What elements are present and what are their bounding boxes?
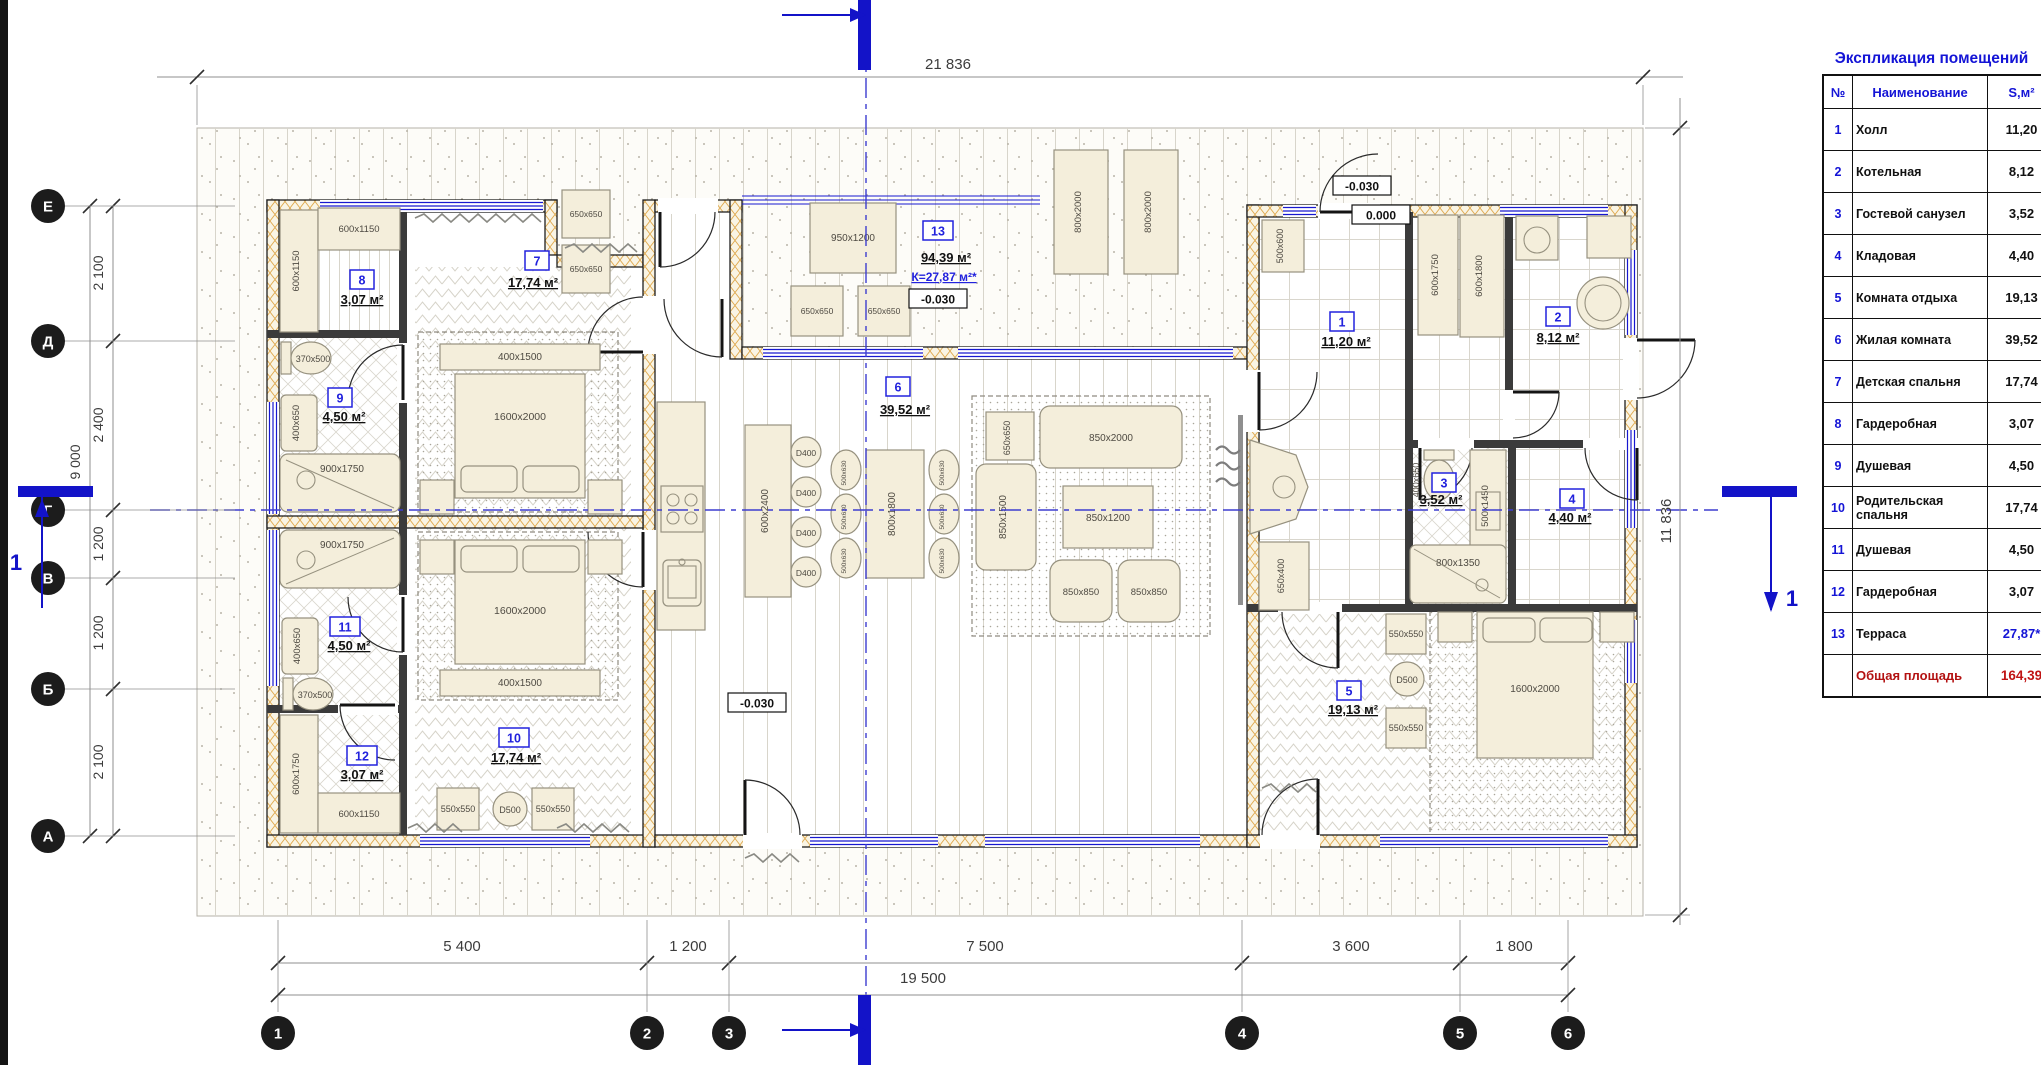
floor-plan-drawing: 600x1150600x1150370x500400x650900x175090…: [0, 0, 2041, 1065]
furniture-item: [283, 678, 293, 710]
furniture-size-label: 850x1200: [1086, 513, 1130, 524]
room-area: 3,07: [1988, 571, 2041, 613]
legend-row: 9Душевая4,50: [1823, 445, 2041, 487]
door-opening: [658, 198, 718, 214]
dim-text-left: 1 200: [90, 615, 106, 650]
furniture-item: [420, 540, 454, 574]
room-number: 5: [1823, 277, 1853, 319]
legend-row: 11Душевая4,50: [1823, 529, 2041, 571]
furniture-item: [663, 560, 701, 606]
legend-total-row: Общая площадь164,39: [1823, 655, 2041, 698]
furniture-item: [281, 342, 291, 374]
furniture-size-label: 850x850: [1063, 587, 1099, 598]
room-name: Детская спальня: [1853, 361, 1988, 403]
exterior-wall: [267, 516, 643, 528]
furniture-size-label: 650x650: [570, 264, 603, 274]
legend-col-name: Наименование: [1853, 75, 1988, 109]
room-number-text: 5: [1346, 685, 1353, 699]
furniture-size-label: 500x1450: [1480, 485, 1491, 527]
elevation-mark-text: -0.030: [921, 293, 955, 307]
furniture-size-label: 1600x2000: [1510, 684, 1560, 695]
furniture-size-label: D500: [1396, 675, 1418, 685]
interior-wall: [399, 212, 407, 835]
section-number-label: 1: [10, 550, 22, 575]
furniture-size-label: 400x1500: [498, 352, 542, 363]
furniture-size-label: 400x650: [291, 405, 302, 441]
furniture-item: [523, 466, 579, 492]
dim-text-bottom: 7 500: [966, 938, 1004, 955]
room-number-text: 12: [355, 750, 369, 764]
furniture-size-label: 400x650: [292, 628, 303, 664]
furniture-size-label: 600x1750: [1430, 254, 1441, 296]
room-area: 3,07: [1988, 403, 2041, 445]
room-number-text: 3: [1441, 477, 1448, 491]
furniture-size-label: 850x850: [1131, 587, 1167, 598]
furniture-size-label: 500x630: [841, 504, 848, 529]
room-name: Гостевой санузел: [1853, 193, 1988, 235]
room-floor: [1516, 448, 1625, 604]
furniture-size-label: 950x1200: [831, 233, 875, 244]
furniture-size-label: 650x650: [1002, 421, 1012, 456]
room-area: 27,87*: [1988, 613, 2041, 655]
room-area: 19,13: [1988, 277, 2041, 319]
axis-bubble-label: 5: [1456, 1026, 1464, 1043]
legend-row: 5Комната отдыха19,13: [1823, 277, 2041, 319]
furniture-size-label: D400: [796, 448, 817, 458]
room-name: Кладовая: [1853, 235, 1988, 277]
room-number-text: 8: [359, 274, 366, 288]
axis-bubble-label: 4: [1238, 1026, 1247, 1043]
door-opening: [641, 296, 657, 354]
room-name: Комната отдыха: [1853, 277, 1988, 319]
room-area-text: 4,40 м²: [1549, 510, 1593, 525]
total-area: 164,39: [1988, 655, 2041, 698]
dim-text-left: 2 100: [90, 744, 106, 779]
furniture-size-label: 550x550: [536, 804, 571, 814]
axis-bubble-label: 2: [643, 1026, 651, 1043]
room-area: 11,20: [1988, 109, 2041, 151]
elevation-mark-text: -0.030: [1345, 180, 1379, 194]
furniture-size-label: 550x550: [1389, 629, 1424, 639]
room-number-text: 7: [534, 255, 541, 269]
section-marker-bar: [1722, 486, 1797, 497]
legend-row: 4Кладовая4,40: [1823, 235, 2041, 277]
room-area-text: 39,52 м²: [880, 402, 931, 417]
furniture-size-label: 600x1150: [338, 224, 379, 235]
dim-text-overall-width: 21 836: [925, 56, 971, 73]
furniture-size-label: 500x630: [939, 548, 946, 573]
furniture-size-label: 500x630: [841, 460, 848, 485]
room-number: 9: [1823, 445, 1853, 487]
room-name: Холл: [1853, 109, 1988, 151]
furniture-size-label: 650x400: [1276, 559, 1286, 594]
room-area: 4,50: [1988, 445, 2041, 487]
terrace-coverage-text: К=27,87 м²*: [911, 270, 977, 284]
room-number: 13: [1823, 613, 1853, 655]
legend-row: 8Гардеробная3,07: [1823, 403, 2041, 445]
furniture-size-label: D400: [796, 528, 817, 538]
legend-row: 1Холл11,20: [1823, 109, 2041, 151]
furniture-item: [588, 480, 622, 514]
furniture-size-label: 650x650: [801, 306, 834, 316]
legend-row: 12Гардеробная3,07: [1823, 571, 2041, 613]
room-name: Родительская спальня: [1853, 487, 1988, 529]
room-number: 6: [1823, 319, 1853, 361]
room-floor: [318, 250, 399, 330]
room-number-text: 11: [338, 621, 351, 635]
interior-wall: [1405, 212, 1413, 604]
furniture-size-label: 500x630: [841, 548, 848, 573]
room-area-text: 94,39 м²: [921, 250, 972, 265]
door-swing-arc: [1637, 340, 1695, 398]
furniture-size-label: 800x2000: [1073, 191, 1084, 233]
room-name: Терраса: [1853, 613, 1988, 655]
furniture-size-label: 850x2000: [1089, 433, 1133, 444]
room-area: 17,74: [1988, 361, 2041, 403]
furniture-size-label: 600x1150: [338, 809, 379, 820]
legend-table-container: № Наименование S,м² 1Холл11,202Котельная…: [1822, 74, 2041, 698]
dim-text-bottom: 1 800: [1495, 938, 1533, 955]
room-area-text: 17,74 м²: [508, 275, 559, 290]
room-number: 1: [1823, 109, 1853, 151]
door-opening: [1503, 390, 1515, 440]
dim-text-bottom: 1 200: [669, 938, 707, 955]
room-name: Гардеробная: [1853, 571, 1988, 613]
furniture-size-label: 550x550: [441, 804, 476, 814]
room-name: Гардеробная: [1853, 403, 1988, 445]
room-area: 4,50: [1988, 529, 2041, 571]
legend-col-area: S,м²: [1988, 75, 2041, 109]
room-number-text: 2: [1555, 311, 1562, 325]
axis-bubble-label: 3: [725, 1026, 733, 1043]
furniture-item: [1424, 450, 1454, 460]
room-number-text: 4: [1569, 493, 1576, 507]
room-area-text: 3,52 м²: [1420, 492, 1464, 507]
room-number-text: 1: [1339, 316, 1346, 330]
furniture-size-label: 500x630: [939, 460, 946, 485]
elevation-mark-text: -0.030: [740, 697, 774, 711]
room-area-text: 3,07 м²: [341, 292, 385, 307]
room-area-text: 19,13 м²: [1328, 702, 1379, 717]
furniture-size-label: 850x1500: [998, 495, 1009, 539]
room-number-text: 10: [507, 732, 521, 746]
screen-edge-bar: [0, 0, 8, 1065]
room-name: Душевая: [1853, 529, 1988, 571]
legend-col-number: №: [1823, 75, 1853, 109]
room-area: 17,74: [1988, 487, 2041, 529]
legend-row: 3Гостевой санузел3,52: [1823, 193, 2041, 235]
furniture-size-label: 800x1350: [1436, 558, 1480, 569]
furniture-size-label: 600x1800: [1474, 255, 1485, 297]
axis-bubble-label: 6: [1564, 1026, 1572, 1043]
furniture-item: [523, 546, 579, 572]
room-name: Жилая комната: [1853, 319, 1988, 361]
dim-text-bottom: 3 600: [1332, 938, 1370, 955]
furniture-size-label: 550x550: [1389, 723, 1424, 733]
dim-text-total-height: 9 000: [67, 444, 83, 479]
room-number-text: 13: [931, 225, 945, 239]
furniture-size-label: 900x1750: [320, 540, 364, 551]
furniture-size-label: D500: [499, 805, 521, 815]
axis-bubble-label: А: [43, 829, 54, 846]
furniture-size-label: 1600x2000: [494, 605, 546, 617]
dim-text-left: 1 200: [90, 526, 106, 561]
legend-header-row: № Наименование S,м²: [1823, 75, 2041, 109]
door-opening: [1418, 438, 1474, 450]
furniture-size-label: 600x1750: [291, 753, 302, 795]
room-area: 8,12: [1988, 151, 2041, 193]
room-area: 3,52: [1988, 193, 2041, 235]
door-opening: [1623, 338, 1639, 400]
room-number-text: 9: [337, 392, 344, 406]
room-area-text: 8,12 м²: [1537, 330, 1581, 345]
exterior-wall: [730, 200, 742, 359]
legend-row: 10Родительская спальня17,74: [1823, 487, 2041, 529]
legend-row: 6Жилая комната39,52: [1823, 319, 2041, 361]
room-number: 10: [1823, 487, 1853, 529]
room-number: 4: [1823, 235, 1853, 277]
furniture-item: [661, 486, 703, 532]
furniture-size-label: 1600x2000: [494, 411, 546, 423]
furniture-item: [588, 540, 622, 574]
furniture-size-label: 650x650: [570, 209, 603, 219]
door-opening: [743, 833, 802, 849]
furniture-size-label: 800x1800: [887, 492, 898, 536]
room-area: 4,40: [1988, 235, 2041, 277]
furniture-size-label: 400x1500: [498, 678, 542, 689]
furniture-size-label: 370x500: [298, 690, 333, 700]
room-number: 7: [1823, 361, 1853, 403]
furniture-item: [1587, 216, 1631, 258]
furniture-size-label: 600x2400: [760, 489, 771, 533]
room-area: 39,52: [1988, 319, 2041, 361]
dim-text-total-width: 19 500: [900, 970, 946, 987]
dim-text-overall-height: 11 836: [1658, 499, 1675, 544]
cad-viewport: 600x1150600x1150370x500400x650900x175090…: [0, 0, 2041, 1065]
legend-row: 2Котельная8,12: [1823, 151, 2041, 193]
room-name: Котельная: [1853, 151, 1988, 193]
furniture-item: [461, 546, 517, 572]
room-area-text: 4,50 м²: [328, 638, 372, 653]
room-name: Душевая: [1853, 445, 1988, 487]
room-area-text: 4,50 м²: [323, 409, 367, 424]
room-number: 3: [1823, 193, 1853, 235]
room-area-text: 3,07 м²: [341, 767, 385, 782]
room-area-text: 11,20 м²: [1321, 334, 1371, 349]
elevation-mark-text: 0.000: [1366, 209, 1396, 223]
door-opening: [1260, 833, 1320, 849]
section-number-label: 1: [1786, 586, 1798, 611]
room-floor: [655, 212, 730, 359]
dim-text-bottom: 5 400: [443, 938, 481, 955]
legend-row: 7Детская спальня17,74: [1823, 361, 2041, 403]
axis-bubble-label: Б: [43, 682, 54, 699]
legend-title: Экспликация помещений: [1822, 50, 2041, 68]
legend-row: 13Терраса27,87*: [1823, 613, 2041, 655]
axis-bubble-label: 1: [274, 1026, 282, 1043]
room-legend-table: № Наименование S,м² 1Холл11,202Котельная…: [1822, 74, 2041, 698]
furniture-size-label: 650x650: [868, 306, 901, 316]
axis-bubble-label: Д: [43, 334, 54, 351]
furniture-size-label: 900x1750: [320, 464, 364, 475]
furniture-item: [461, 466, 517, 492]
section-marker-bar: [858, 0, 871, 70]
exterior-wall: [545, 200, 557, 255]
furniture-item: [1438, 612, 1472, 642]
room-area-text: 17,74 м²: [491, 750, 542, 765]
section-marker-arrow: [1764, 592, 1778, 612]
furniture-item: [420, 480, 454, 514]
axis-bubble-label: В: [43, 571, 54, 588]
axis-bubble-label: Е: [43, 199, 53, 216]
furniture-item: [1483, 618, 1535, 642]
furniture-size-label: D400: [796, 488, 817, 498]
furniture-size-label: D400: [796, 568, 817, 578]
furniture-size-label: 500x630: [939, 504, 946, 529]
total-label: Общая площадь: [1853, 655, 1988, 698]
furniture-item: [1540, 618, 1592, 642]
dim-text-left: 2 400: [90, 407, 106, 442]
furniture-size-label: 500x600: [1275, 229, 1285, 264]
dim-text-left: 2 100: [90, 255, 106, 290]
furniture-size-label: 600x1150: [291, 250, 302, 291]
room-number-text: 6: [895, 381, 902, 395]
furniture-size-label: 370x500: [296, 354, 331, 364]
furniture-item: [1600, 612, 1634, 642]
room-number: 11: [1823, 529, 1853, 571]
room-number: 2: [1823, 151, 1853, 193]
furniture-size-label: 800x2000: [1143, 191, 1154, 233]
interior-wall: [1508, 448, 1516, 612]
room-number: 12: [1823, 571, 1853, 613]
room-number: 8: [1823, 403, 1853, 445]
section-marker-bar: [18, 486, 93, 497]
